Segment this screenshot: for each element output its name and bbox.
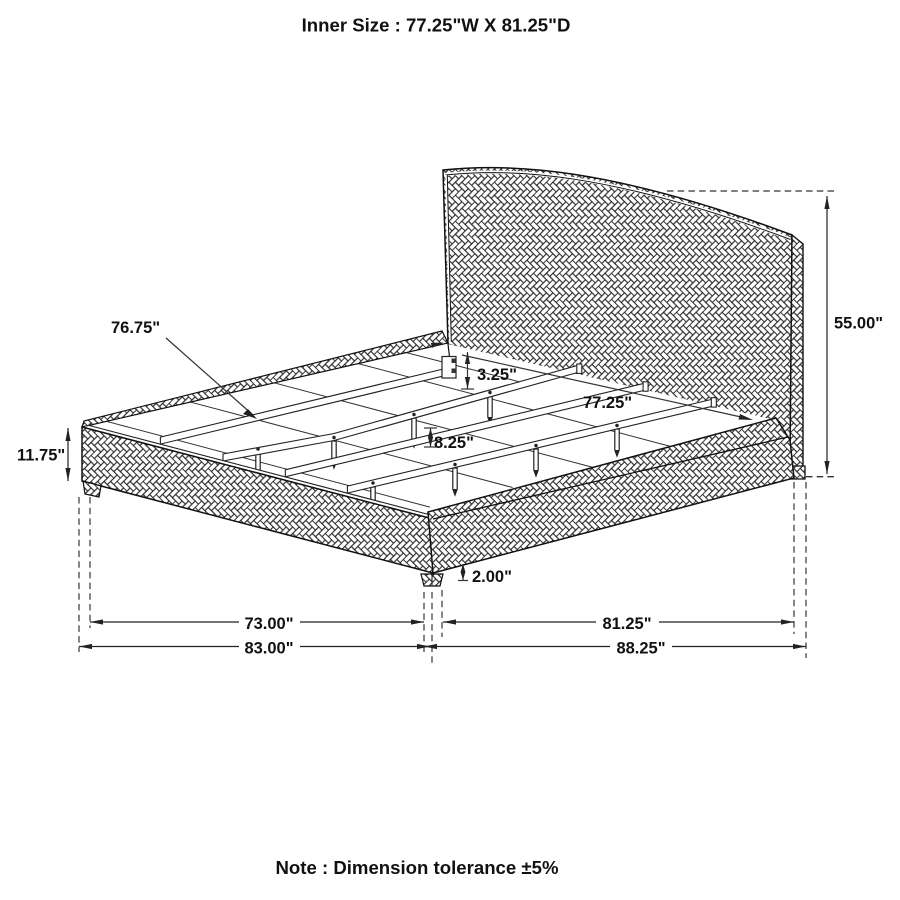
svg-text:83.00": 83.00": [244, 640, 293, 658]
svg-text:77.25": 77.25": [583, 394, 632, 412]
svg-text:76.75": 76.75": [111, 319, 160, 337]
svg-text:8.25": 8.25": [434, 434, 474, 452]
svg-text:88.25": 88.25": [616, 640, 665, 658]
svg-text:81.25": 81.25": [602, 615, 651, 633]
svg-text:3.25": 3.25": [477, 366, 517, 384]
svg-text:Inner Size : 77.25"W X 81.25"D: Inner Size : 77.25"W X 81.25"D: [302, 15, 571, 36]
svg-text:2.00": 2.00": [472, 568, 512, 586]
svg-text:Note : Dimension tolerance ±5%: Note : Dimension tolerance ±5%: [276, 857, 559, 878]
svg-text:11.75": 11.75": [17, 447, 65, 465]
svg-text:73.00": 73.00": [244, 615, 293, 633]
svg-text:55.00": 55.00": [834, 315, 883, 333]
